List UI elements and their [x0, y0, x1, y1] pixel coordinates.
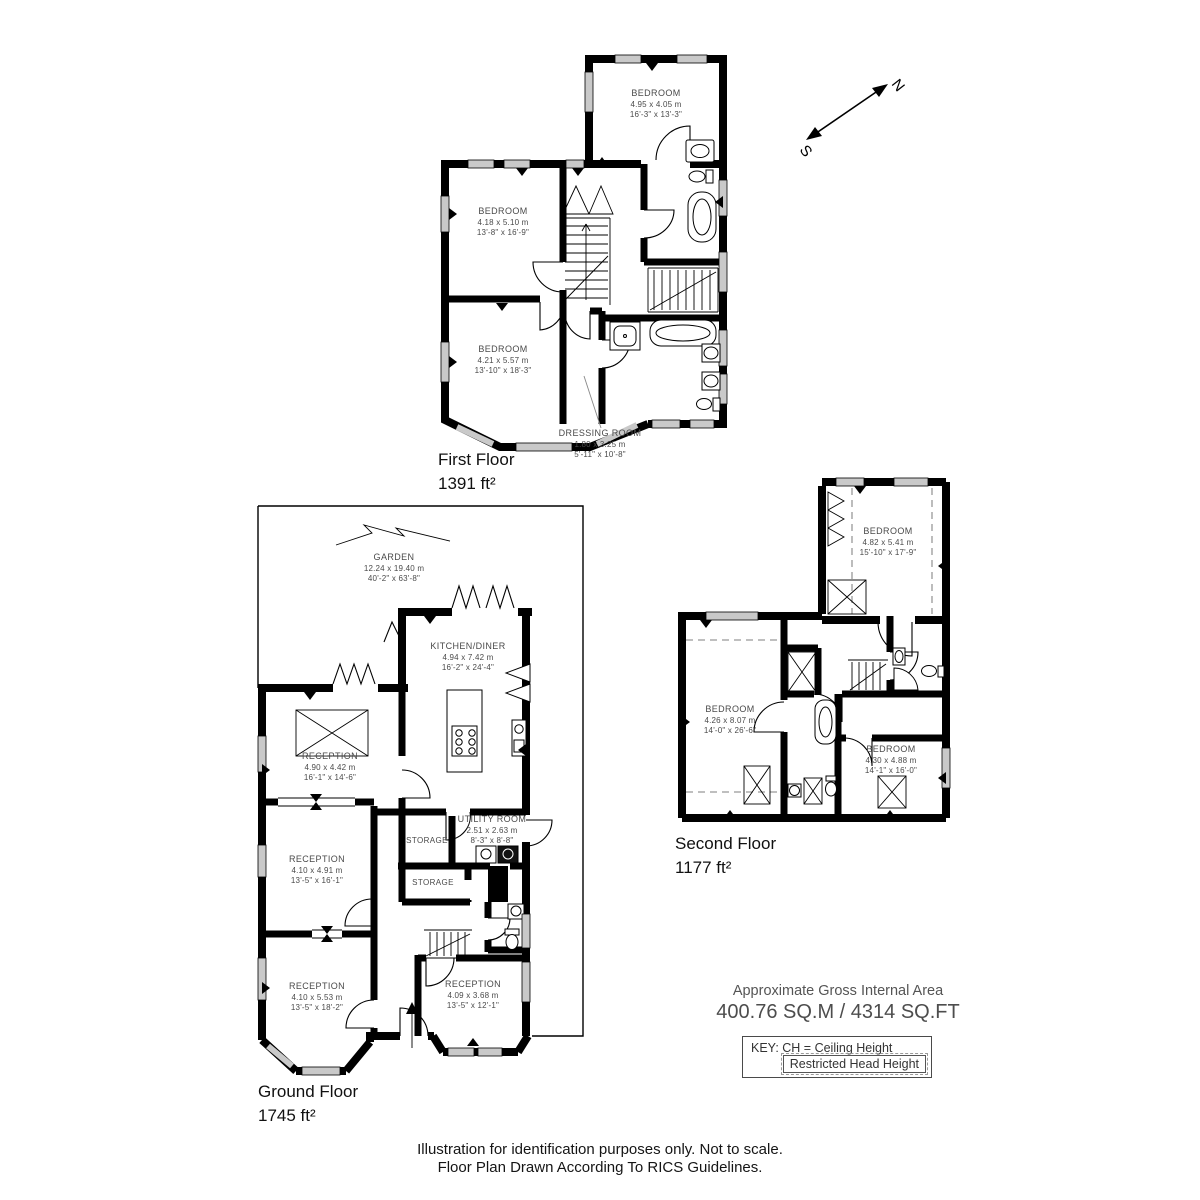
room-label-gf-reception-front-right: RECEPTION 4.09 x 3.68 m 13'-5" x 12'-1" [445, 979, 501, 1012]
bifold-door [333, 664, 375, 684]
toilet-icon [713, 398, 720, 411]
compass-arrow [812, 88, 882, 136]
compass-south-label: S [796, 142, 816, 160]
window [652, 420, 680, 428]
window [522, 962, 530, 1002]
room-label-ff-bedroom-top: BEDROOM 4.95 x 4.05 m 16'-3" x 13'-3" [630, 88, 682, 121]
room-label-gf-garden: GARDEN 12.24 x 19.40 m 40'-2" x 63'-8" [364, 552, 424, 585]
window [836, 478, 864, 486]
window [677, 55, 707, 63]
door-arc [402, 770, 430, 798]
window [441, 342, 449, 382]
key-box: KEY: CH = Ceiling Height Restricted Head… [742, 1036, 932, 1078]
garden-break-symbol [336, 525, 450, 545]
first-floor-area: 1391 ft² [438, 474, 496, 494]
room-label-ff-bedroom-mid: BEDROOM 4.18 x 5.10 m 13'-8" x 16'-9" [477, 206, 529, 239]
window [468, 160, 494, 168]
room-label-gf-storage-upper: STORAGE [406, 836, 448, 847]
window [894, 478, 928, 486]
window [719, 252, 727, 292]
ground-floor-title: Ground Floor [258, 1082, 358, 1102]
door-arc [754, 702, 784, 732]
room-label-gf-kitchen: KITCHEN/DINER 4.94 x 7.42 m 16'-2" x 24'… [430, 641, 505, 674]
window [448, 1048, 474, 1056]
door-arc [644, 210, 674, 238]
toilet-icon [938, 666, 944, 677]
room-label-gf-storage-lower: STORAGE [412, 878, 454, 889]
compass-south-arrowhead [806, 127, 822, 140]
door-arc [656, 126, 690, 160]
bay-window [268, 1046, 292, 1066]
toilet-icon [706, 170, 713, 183]
bifold-door [452, 586, 480, 608]
second-floor-area: 1177 ft² [675, 858, 731, 878]
window [585, 72, 593, 112]
disclaimer-line-1: Illustration for identification purposes… [0, 1141, 1200, 1158]
chimney-duct [488, 866, 508, 902]
room-label-gf-reception-rear: RECEPTION 4.90 x 4.42 m 16'-1" x 14'-6" [302, 751, 358, 784]
stairs [848, 660, 888, 690]
utility-appliances [476, 846, 518, 863]
window [706, 612, 758, 620]
disclaimer-line-2: Floor Plan Drawn According To RICS Guide… [0, 1159, 1200, 1176]
bay-window [302, 1067, 340, 1075]
bathroom-fixtures [788, 700, 837, 804]
gross-internal-area-value: 400.76 SQ.M / 4314 SQ.FT [716, 1001, 959, 1024]
bathroom-fixtures [610, 320, 720, 411]
floorplan-page: N S BEDROOM 4.95 x 4.05 m 16'-3" x 13'-3… [0, 0, 1200, 1200]
compass-north-label: N [888, 76, 908, 95]
first-floor-linework [441, 55, 727, 451]
restricted-head-height-label: Restricted Head Height [783, 1055, 926, 1073]
window [504, 160, 530, 168]
door-arc [565, 311, 590, 339]
wardrobe-icon [563, 186, 613, 214]
compass: N S [796, 76, 908, 160]
shower-icon [894, 668, 918, 690]
first-floor-title: First Floor [438, 450, 515, 470]
second-floor-title: Second Floor [675, 834, 776, 854]
restricted-head-height-box: Restricted Head Height [781, 1053, 928, 1075]
room-label-sf-bedroom-right: BEDROOM 4.30 x 4.88 m 14'-1" x 16'-0" [865, 744, 917, 777]
room-label-gf-reception-middle: RECEPTION 4.10 x 4.91 m 13'-5" x 16'-1" [289, 854, 345, 887]
room-label-sf-bedroom-left: BEDROOM 4.26 x 8.07 m 14'-0" x 26'-6" [704, 704, 756, 737]
window [478, 1048, 502, 1056]
ground-floor-area: 1745 ft² [258, 1106, 316, 1126]
window [258, 845, 266, 877]
kitchen-fixtures [447, 664, 530, 772]
second-floor-interior-walls [784, 616, 946, 818]
room-label-ff-dressing: DRESSING ROOM 1.80 x 3.25 m 5'-11" x 10'… [559, 428, 642, 461]
room-label-gf-utility: UTILITY ROOM 2.51 x 2.63 m 8'-3" x 8'-8" [458, 814, 527, 847]
window [441, 196, 449, 232]
window [615, 55, 641, 63]
door-arc [533, 262, 563, 292]
door-arc [346, 1000, 374, 1028]
wardrobe-icon [828, 492, 844, 546]
window [566, 160, 584, 168]
room-label-sf-bedroom-top: BEDROOM 4.82 x 5.41 m 15'-10" x 17'-9" [860, 526, 917, 559]
window [690, 420, 714, 428]
bifold-door [486, 586, 514, 608]
ensuite-fixtures [686, 140, 716, 242]
room-label-gf-reception-front-left: RECEPTION 4.10 x 5.53 m 13'-5" x 18'-2" [289, 981, 345, 1014]
window [522, 914, 530, 948]
stairs [424, 930, 472, 958]
room-label-ff-bedroom-bottom: BEDROOM 4.21 x 5.57 m 13'-10" x 18'-3" [475, 344, 532, 377]
rooflight [296, 710, 368, 756]
gross-internal-area-title: Approximate Gross Internal Area [733, 983, 943, 999]
bay-window [457, 427, 493, 444]
door-arc [345, 899, 372, 926]
dressing-room-leader-line [584, 376, 601, 428]
toilet-icon [826, 776, 836, 781]
first-floor-left-wall-bay [445, 160, 648, 447]
compass-north-arrowhead [872, 84, 888, 97]
plan-linework: N S [0, 0, 1200, 1200]
shower-room-fixtures [893, 648, 944, 690]
